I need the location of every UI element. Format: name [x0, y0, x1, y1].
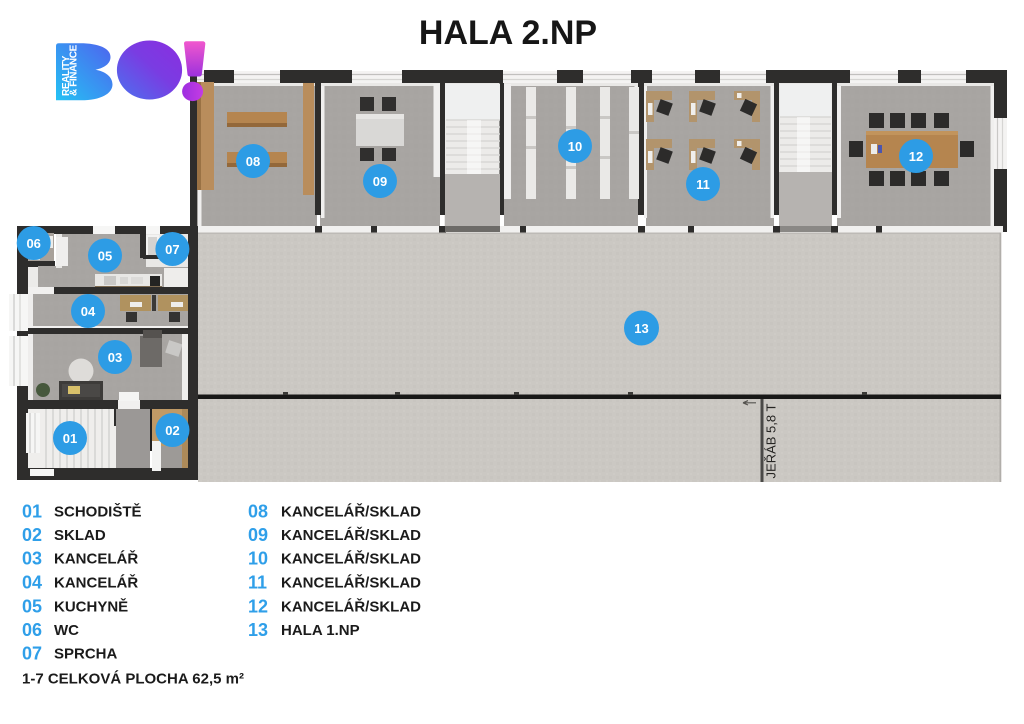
svg-text:02: 02 — [165, 423, 179, 438]
svg-text:SCHODIŠTĚ: SCHODIŠTĚ — [54, 503, 142, 521]
svg-text:13: 13 — [248, 620, 268, 640]
svg-text:KANCELÁŘ/SKLAD: KANCELÁŘ/SKLAD — [281, 550, 421, 568]
svg-text:07: 07 — [22, 644, 42, 664]
svg-text:13: 13 — [634, 321, 648, 336]
svg-text:10: 10 — [248, 549, 268, 569]
svg-text:01: 01 — [22, 502, 42, 522]
svg-text:KANCELÁŘ: KANCELÁŘ — [54, 550, 138, 568]
svg-text:06: 06 — [26, 236, 40, 251]
svg-text:HALA 2.NP: HALA 2.NP — [419, 14, 597, 52]
svg-text:KANCELÁŘ/SKLAD: KANCELÁŘ/SKLAD — [281, 503, 421, 521]
svg-text:09: 09 — [373, 174, 387, 189]
svg-text:06: 06 — [22, 620, 42, 640]
svg-text:KANCELÁŘ/SKLAD: KANCELÁŘ/SKLAD — [281, 598, 421, 616]
svg-text:11: 11 — [696, 177, 710, 192]
svg-text:KANCELÁŘ: KANCELÁŘ — [54, 574, 138, 592]
svg-text:JEŘÁB 5,8 T: JEŘÁB 5,8 T — [764, 403, 779, 478]
svg-text:10: 10 — [568, 139, 582, 154]
svg-text:04: 04 — [22, 573, 42, 593]
svg-text:HALA 1.NP: HALA 1.NP — [281, 622, 360, 639]
svg-text:12: 12 — [909, 149, 923, 164]
svg-text:KANCELÁŘ/SKLAD: KANCELÁŘ/SKLAD — [281, 574, 421, 592]
svg-text:08: 08 — [246, 154, 260, 169]
svg-text:1-7 CELKOVÁ PLOCHA 62,5 m²: 1-7 CELKOVÁ PLOCHA 62,5 m² — [22, 671, 244, 688]
svg-text:03: 03 — [108, 350, 122, 365]
svg-text:03: 03 — [22, 549, 42, 569]
svg-text:02: 02 — [22, 525, 42, 545]
svg-text:WC: WC — [54, 622, 79, 639]
svg-text:01: 01 — [63, 431, 77, 446]
svg-text:04: 04 — [81, 304, 96, 319]
svg-text:05: 05 — [22, 597, 42, 617]
svg-text:09: 09 — [248, 525, 268, 545]
svg-text:07: 07 — [165, 242, 179, 257]
svg-text:SPRCHA: SPRCHA — [54, 646, 118, 663]
svg-text:KUCHYNĚ: KUCHYNĚ — [54, 598, 128, 616]
svg-text:11: 11 — [248, 573, 267, 593]
svg-text:SKLAD: SKLAD — [54, 527, 106, 544]
svg-text:& FINANCE: & FINANCE — [69, 44, 80, 96]
svg-text:08: 08 — [248, 502, 268, 522]
svg-text:05: 05 — [98, 248, 112, 263]
svg-text:KANCELÁŘ/SKLAD: KANCELÁŘ/SKLAD — [281, 526, 421, 544]
svg-text:12: 12 — [248, 597, 268, 617]
